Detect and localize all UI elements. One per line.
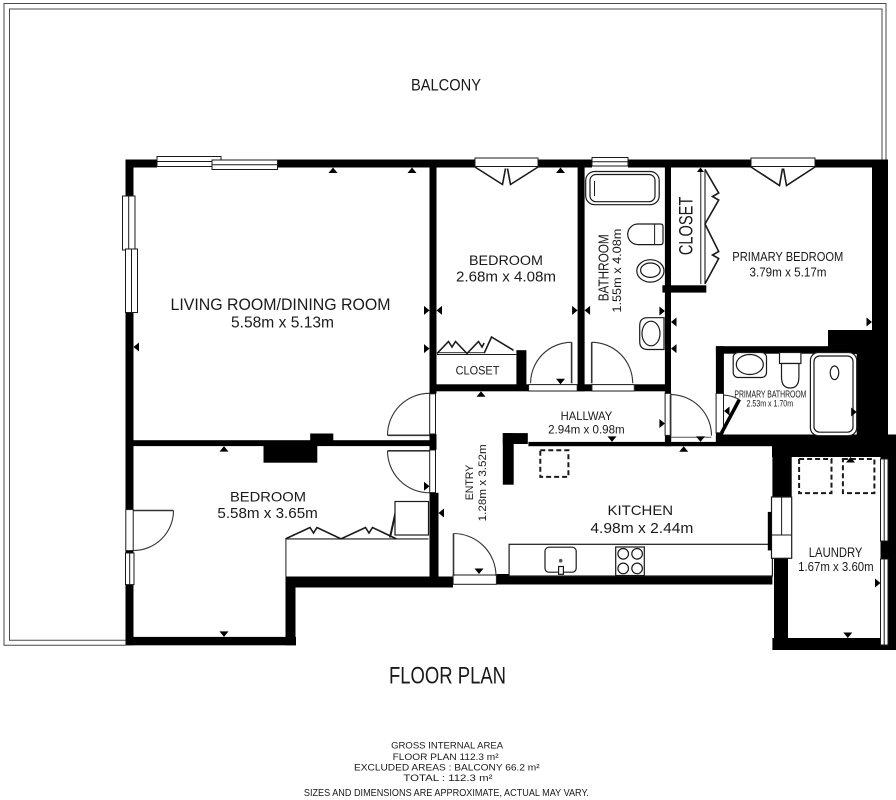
svg-text:HALLWAY: HALLWAY — [561, 409, 613, 423]
svg-text:2.53m x 1.70m: 2.53m x 1.70m — [747, 399, 794, 409]
svg-text:1.28m x 3.52m: 1.28m x 3.52m — [477, 444, 489, 521]
svg-text:BEDROOM: BEDROOM — [469, 253, 543, 268]
svg-text:2.94m x 0.98m: 2.94m x 0.98m — [548, 423, 625, 437]
svg-text:LAUNDRY: LAUNDRY — [809, 545, 863, 560]
svg-text:BALCONY: BALCONY — [411, 76, 481, 95]
svg-text:2.68m x 4.08m: 2.68m x 4.08m — [456, 269, 556, 285]
svg-text:PRIMARY BEDROOM: PRIMARY BEDROOM — [732, 249, 843, 264]
svg-text:FLOOR PLAN: FLOOR PLAN — [389, 662, 506, 689]
svg-text:GROSS INTERNAL AREA: GROSS INTERNAL AREA — [391, 740, 504, 751]
svg-text:5.58m x 5.13m: 5.58m x 5.13m — [231, 315, 334, 332]
svg-text:1.67m x 3.60m: 1.67m x 3.60m — [798, 559, 874, 574]
svg-text:BEDROOM: BEDROOM — [230, 489, 306, 505]
svg-text:CLOSET: CLOSET — [456, 364, 500, 378]
svg-text:SIZES AND DIMENSIONS ARE APPRO: SIZES AND DIMENSIONS ARE APPROXIMATE, AC… — [304, 787, 589, 799]
svg-text:4.98m x 2.44m: 4.98m x 2.44m — [590, 521, 693, 537]
svg-text:FLOOR PLAN 112.3 m²: FLOOR PLAN 112.3 m² — [393, 752, 499, 763]
svg-text:5.58m x 3.65m: 5.58m x 3.65m — [217, 506, 317, 522]
svg-text:KITCHEN: KITCHEN — [608, 502, 674, 518]
svg-text:TOTAL : 112.3 m²: TOTAL : 112.3 m² — [403, 773, 492, 784]
svg-text:1.55m x 4.08m: 1.55m x 4.08m — [610, 229, 624, 313]
svg-text:LIVING ROOM/DINING ROOM: LIVING ROOM/DINING ROOM — [171, 296, 391, 314]
svg-text:CLOSET: CLOSET — [676, 196, 697, 255]
svg-text:ENTRY: ENTRY — [464, 464, 476, 500]
svg-text:3.79m x 5.17m: 3.79m x 5.17m — [750, 264, 827, 279]
